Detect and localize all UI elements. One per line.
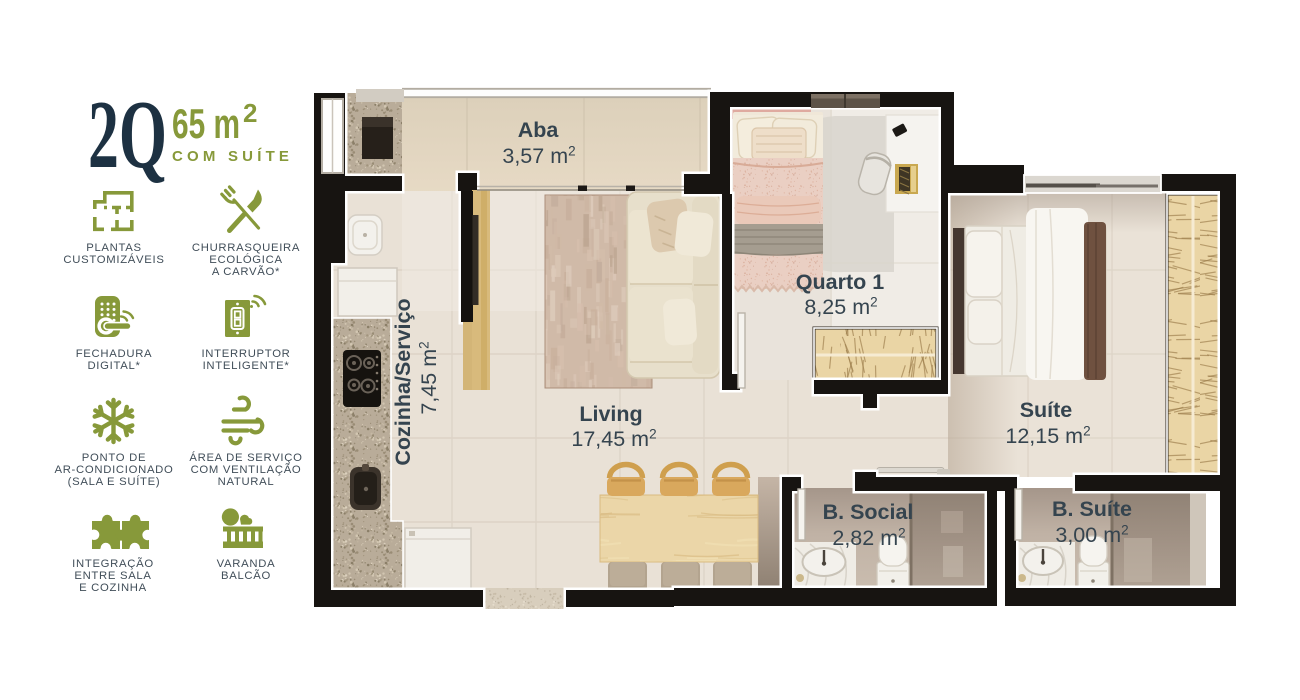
svg-text:Cozinha/Serviço: Cozinha/Serviço [391,298,415,465]
svg-text:COM VENTILAÇÃO: COM VENTILAÇÃO [191,463,302,476]
svg-text:Quarto 1: Quarto 1 [796,270,884,294]
svg-text:CUSTOMIZÁVEIS: CUSTOMIZÁVEIS [63,253,164,266]
svg-text:NATURAL: NATURAL [218,476,275,488]
svg-text:ÁREA DE SERVIÇO: ÁREA DE SERVIÇO [189,451,302,464]
svg-text:FECHADURA: FECHADURA [76,348,153,360]
svg-text:BALCÃO: BALCÃO [221,569,271,582]
svg-text:B. Social: B. Social [823,500,914,524]
svg-text:8,25 m2: 8,25 m2 [804,295,877,320]
svg-text:Suíte: Suíte [1020,398,1073,422]
svg-text:3,57 m2: 3,57 m2 [502,144,575,169]
svg-text:B. Suíte: B. Suíte [1052,497,1132,521]
svg-text:65 m: 65 m [172,100,240,147]
svg-text:17,45 m2: 17,45 m2 [571,427,656,452]
svg-text:INTEGRAÇÃO: INTEGRAÇÃO [72,557,154,570]
svg-text:2: 2 [243,98,257,128]
svg-text:INTELIGENTE*: INTELIGENTE* [203,360,290,372]
svg-text:AR-CONDICIONADO: AR-CONDICIONADO [54,464,173,476]
svg-text:PLANTAS: PLANTAS [86,242,142,254]
svg-text:2,82 m2: 2,82 m2 [832,526,905,551]
svg-text:COM SUÍTE: COM SUÍTE [172,148,293,165]
svg-text:Aba: Aba [518,118,560,142]
svg-text:ECOLÓGICA: ECOLÓGICA [209,253,282,266]
svg-text:12,15 m2: 12,15 m2 [1005,424,1090,449]
svg-text:Living: Living [579,402,642,426]
svg-text:DIGITAL*: DIGITAL* [87,360,140,372]
svg-text:7,45 m2: 7,45 m2 [417,341,442,414]
svg-text:2Q: 2Q [88,81,167,189]
svg-text:PONTO DE: PONTO DE [82,452,146,464]
svg-text:A CARVÃO*: A CARVÃO* [212,265,280,278]
svg-text:E COZINHA: E COZINHA [79,582,147,594]
svg-text:VARANDA: VARANDA [217,558,276,570]
svg-text:ENTRE SALA: ENTRE SALA [74,570,151,582]
svg-text:3,00 m2: 3,00 m2 [1055,523,1128,548]
svg-text:(SALA E SUÍTE): (SALA E SUÍTE) [68,475,161,488]
svg-text:CHURRASQUEIRA: CHURRASQUEIRA [192,242,300,254]
svg-text:INTERRUPTOR: INTERRUPTOR [201,348,290,360]
